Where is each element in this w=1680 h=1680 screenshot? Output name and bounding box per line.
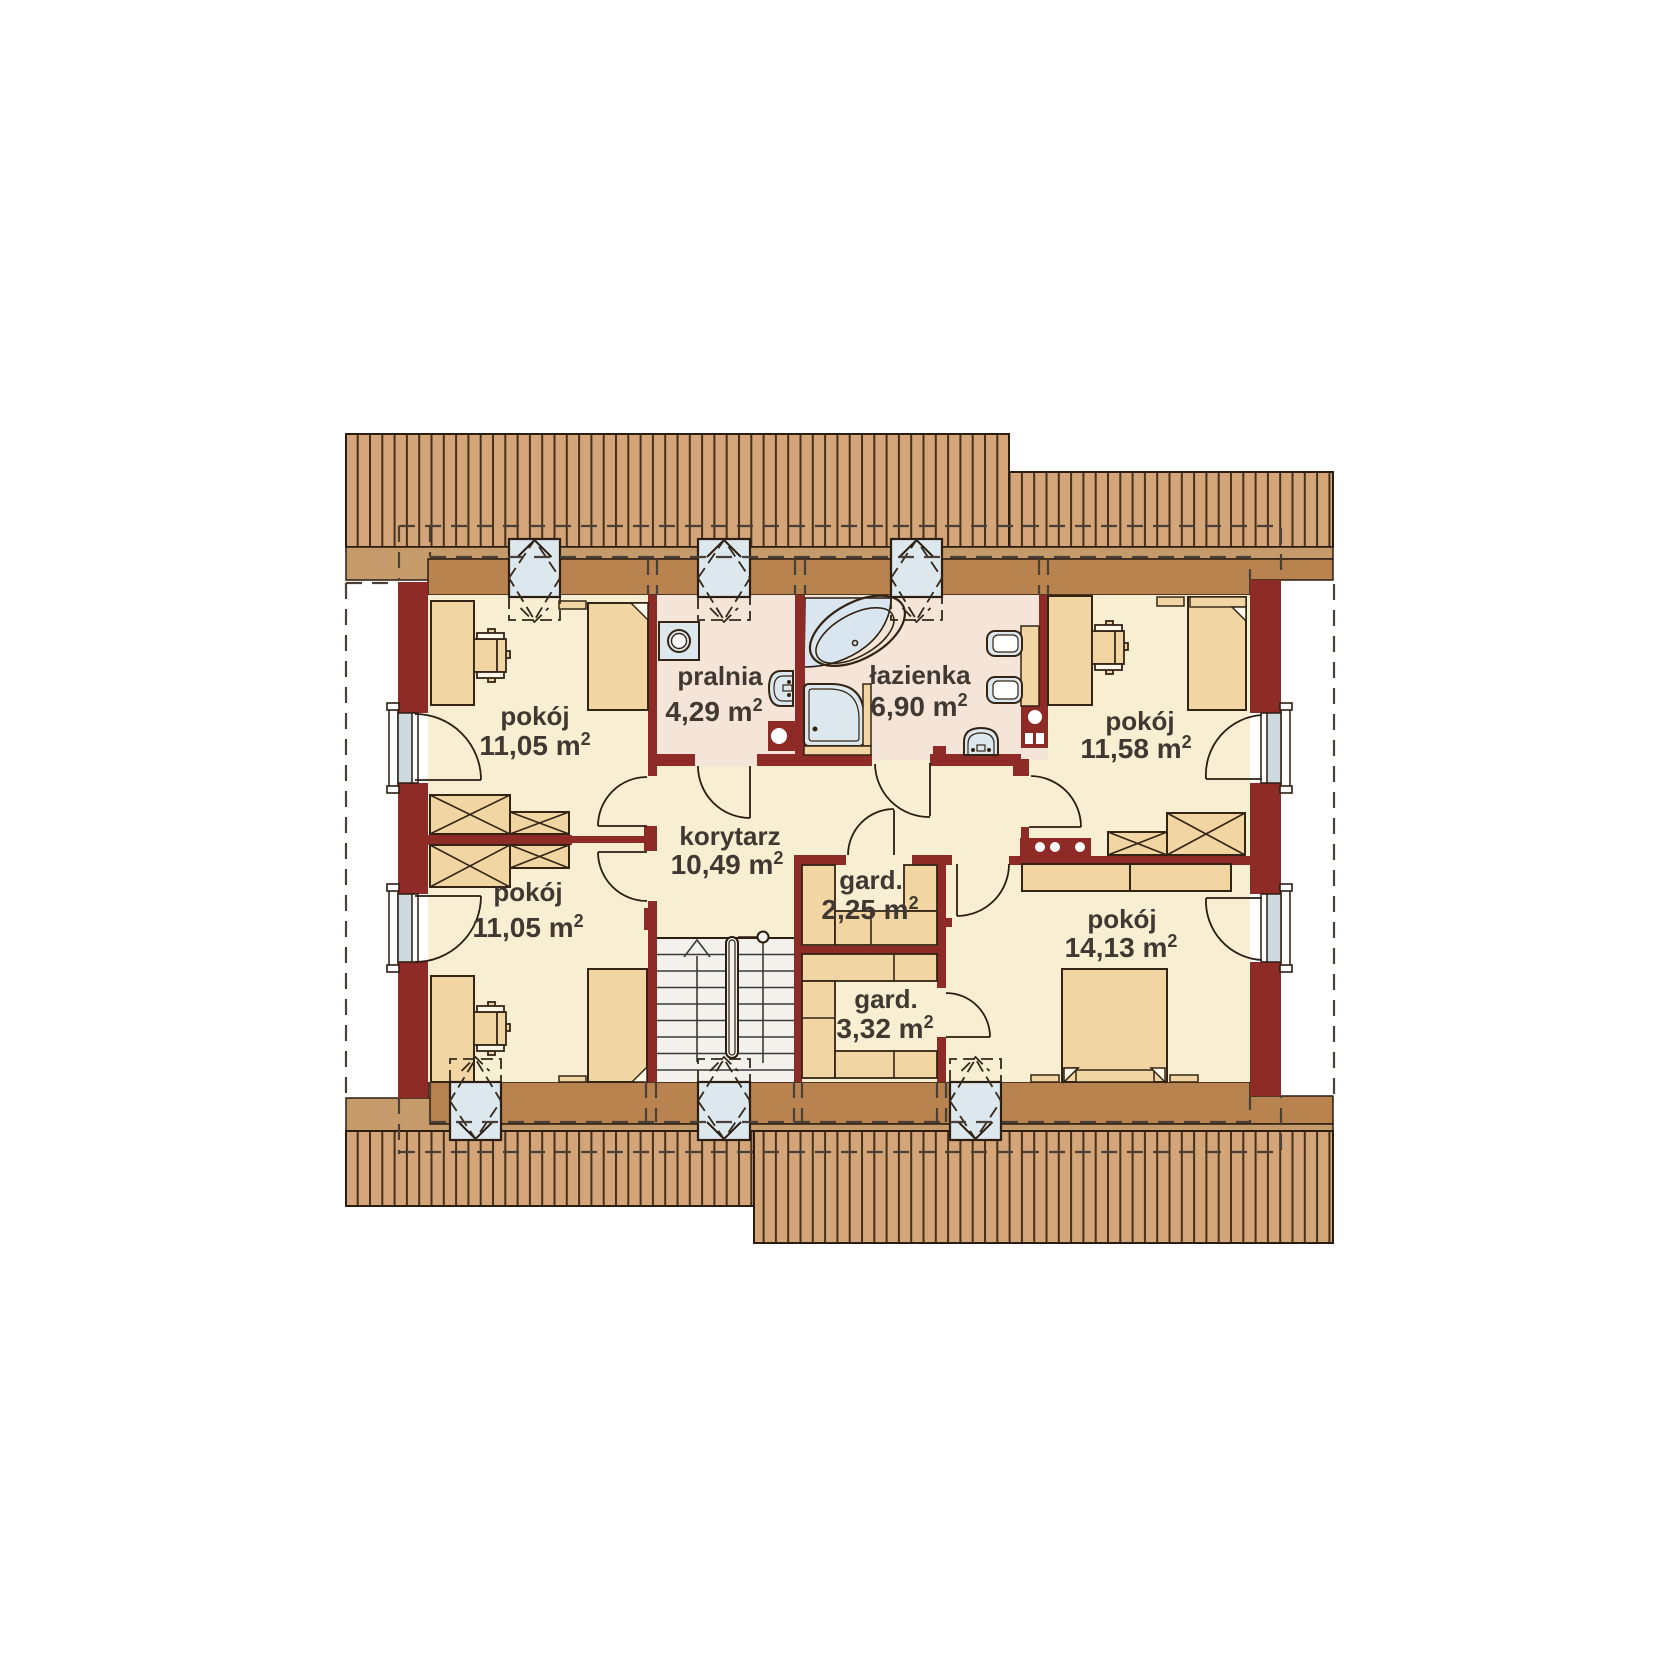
svg-text:pokój: pokój: [500, 701, 569, 731]
svg-text:pralnia: pralnia: [677, 661, 763, 691]
svg-text:3,32 m2: 3,32 m2: [836, 1012, 933, 1044]
svg-text:pokój: pokój: [1087, 904, 1156, 934]
svg-text:10,49 m2: 10,49 m2: [671, 848, 784, 880]
svg-text:11,05 m2: 11,05 m2: [472, 911, 583, 943]
svg-text:11,58 m2: 11,58 m2: [1080, 732, 1191, 764]
svg-text:gard.: gard.: [839, 865, 903, 895]
svg-text:pokój: pokój: [493, 877, 562, 907]
svg-text:11,05 m2: 11,05 m2: [479, 729, 590, 761]
svg-text:4,29 m2: 4,29 m2: [665, 695, 762, 727]
svg-text:korytarz: korytarz: [679, 821, 780, 851]
svg-text:6,90 m2: 6,90 m2: [870, 690, 967, 722]
svg-text:2,25 m2: 2,25 m2: [821, 893, 918, 925]
svg-text:pokój: pokój: [1105, 706, 1174, 736]
svg-text:gard.: gard.: [854, 984, 918, 1014]
svg-text:14,13 m2: 14,13 m2: [1065, 931, 1178, 963]
svg-text:łazienka: łazienka: [869, 660, 971, 690]
